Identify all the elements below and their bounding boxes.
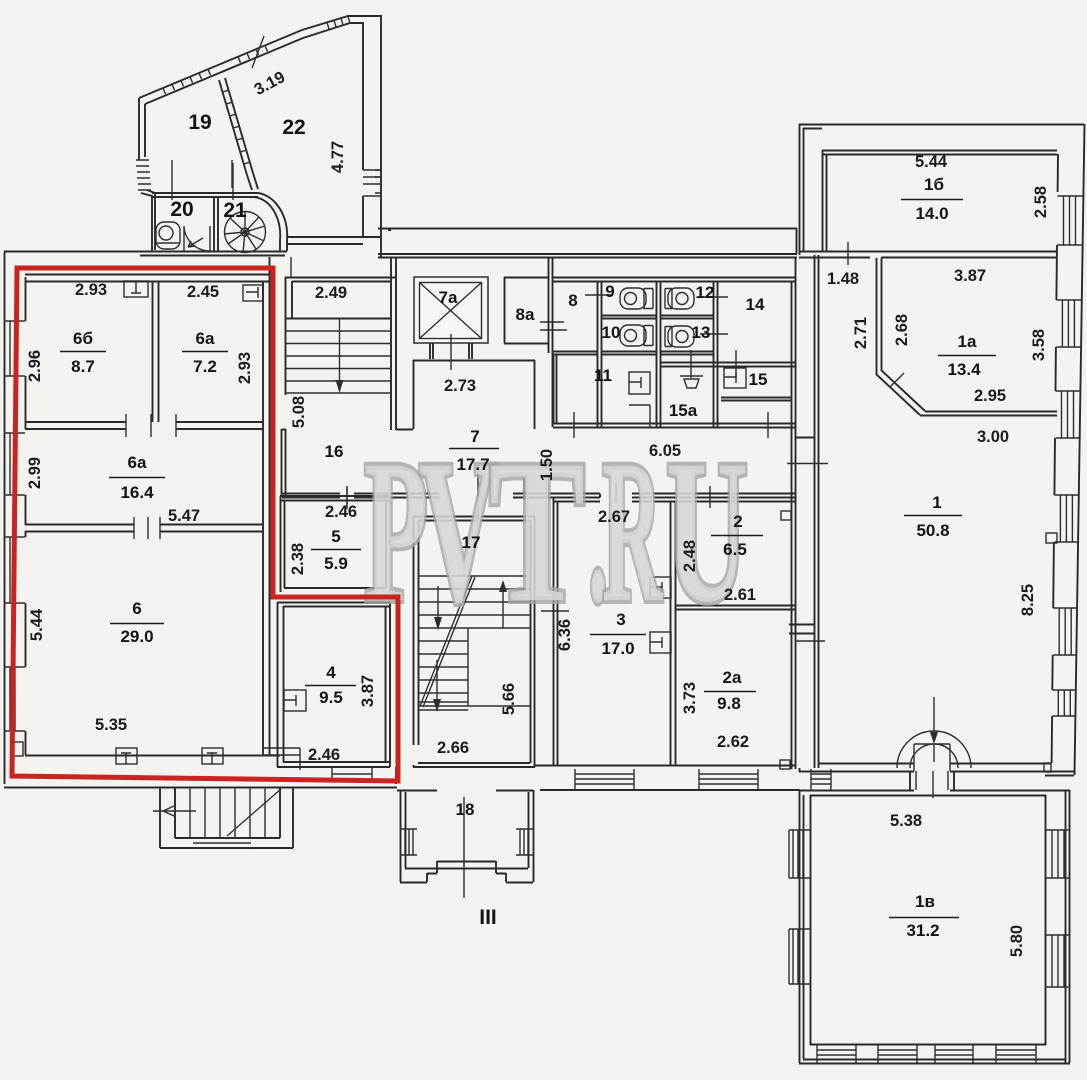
svg-text:2.46: 2.46 (308, 746, 340, 764)
svg-text:11: 11 (594, 366, 612, 385)
svg-text:5.44: 5.44 (28, 608, 46, 641)
svg-text:5.44: 5.44 (915, 153, 948, 171)
svg-text:4.77: 4.77 (329, 141, 347, 173)
svg-text:2.38: 2.38 (289, 543, 307, 575)
svg-text:13: 13 (692, 323, 711, 342)
svg-text:1.48: 1.48 (827, 270, 859, 288)
svg-text:18: 18 (456, 800, 475, 819)
svg-text:3.00: 3.00 (977, 428, 1009, 446)
svg-text:16: 16 (325, 442, 344, 461)
svg-text:2.96: 2.96 (26, 350, 44, 382)
svg-text:3.87: 3.87 (954, 267, 986, 285)
svg-text:2.93: 2.93 (75, 281, 107, 299)
svg-text:1а: 1а (958, 332, 977, 351)
svg-text:2: 2 (733, 512, 742, 531)
svg-text:17.0: 17.0 (601, 639, 634, 658)
svg-text:29.0: 29.0 (120, 627, 153, 646)
svg-text:12: 12 (696, 283, 715, 302)
svg-text:3.58: 3.58 (1030, 329, 1048, 361)
svg-text:8.7: 8.7 (71, 357, 95, 376)
svg-text:1: 1 (932, 493, 941, 512)
svg-text:5.80: 5.80 (1008, 925, 1026, 957)
svg-text:2.66: 2.66 (437, 739, 469, 757)
svg-text:15а: 15а (669, 401, 698, 420)
svg-text:16.4: 16.4 (120, 483, 154, 502)
svg-text:14.0: 14.0 (915, 204, 948, 223)
svg-text:31.2: 31.2 (906, 921, 939, 940)
svg-text:5.66: 5.66 (500, 683, 518, 715)
svg-text:5: 5 (331, 527, 340, 546)
svg-text:1б: 1б (924, 175, 944, 194)
svg-text:6: 6 (132, 599, 141, 618)
svg-text:13.4: 13.4 (947, 360, 981, 379)
svg-text:8: 8 (568, 291, 577, 310)
svg-text:2.68: 2.68 (893, 314, 911, 346)
svg-text:50.8: 50.8 (916, 521, 949, 540)
svg-text:9: 9 (605, 282, 614, 301)
svg-text:9.5: 9.5 (319, 688, 343, 707)
svg-text:6а: 6а (196, 329, 215, 348)
svg-text:6б: 6б (73, 329, 93, 348)
svg-text:20: 20 (170, 198, 193, 221)
svg-text:19: 19 (188, 111, 211, 134)
svg-text:1в: 1в (915, 892, 935, 911)
svg-text:7.2: 7.2 (193, 357, 217, 376)
svg-text:5.9: 5.9 (324, 554, 348, 573)
svg-text:6а: 6а (128, 453, 147, 472)
svg-text:3.87: 3.87 (359, 675, 377, 707)
svg-text:2.58: 2.58 (1032, 186, 1050, 218)
svg-text:2.46: 2.46 (325, 503, 357, 521)
svg-text:8а: 8а (516, 305, 535, 324)
svg-text:T: T (489, 418, 585, 645)
svg-text:5.38: 5.38 (890, 812, 922, 830)
svg-text:7: 7 (470, 427, 479, 446)
svg-text:7а: 7а (439, 288, 458, 307)
svg-text:2.95: 2.95 (974, 387, 1006, 405)
svg-text:15: 15 (749, 370, 768, 389)
svg-text:22: 22 (282, 116, 305, 139)
svg-text:3: 3 (616, 610, 625, 629)
svg-text:2.73: 2.73 (444, 377, 476, 395)
svg-text:2.67: 2.67 (598, 508, 630, 526)
svg-text:17.7: 17.7 (456, 455, 489, 474)
svg-text:17: 17 (462, 533, 481, 552)
svg-text:9.8: 9.8 (717, 694, 741, 713)
svg-text:2.49: 2.49 (315, 284, 347, 302)
svg-text:2.99: 2.99 (26, 457, 44, 489)
svg-text:III: III (479, 906, 497, 929)
svg-text:5.08: 5.08 (290, 396, 308, 428)
svg-text:1.50: 1.50 (538, 449, 556, 481)
svg-text:2.48: 2.48 (681, 540, 699, 572)
svg-text:4: 4 (326, 663, 336, 682)
svg-text:2.71: 2.71 (852, 317, 870, 349)
svg-text:2.45: 2.45 (187, 283, 219, 301)
svg-text:8.25: 8.25 (1019, 584, 1037, 616)
svg-text:2.62: 2.62 (717, 733, 749, 751)
svg-text:10: 10 (602, 323, 621, 342)
svg-text:5.47: 5.47 (168, 507, 200, 525)
svg-text:3.73: 3.73 (681, 682, 699, 714)
svg-text:2.61: 2.61 (724, 586, 756, 604)
svg-text:14: 14 (746, 295, 765, 314)
svg-text:6.5: 6.5 (723, 540, 747, 559)
svg-text:21: 21 (223, 199, 247, 222)
svg-text:6.36: 6.36 (556, 619, 574, 651)
svg-text:2.93: 2.93 (236, 352, 254, 384)
svg-text:2а: 2а (723, 668, 742, 687)
svg-text:6.05: 6.05 (649, 442, 681, 460)
svg-text:V: V (419, 418, 498, 645)
svg-text:5.35: 5.35 (95, 716, 127, 734)
